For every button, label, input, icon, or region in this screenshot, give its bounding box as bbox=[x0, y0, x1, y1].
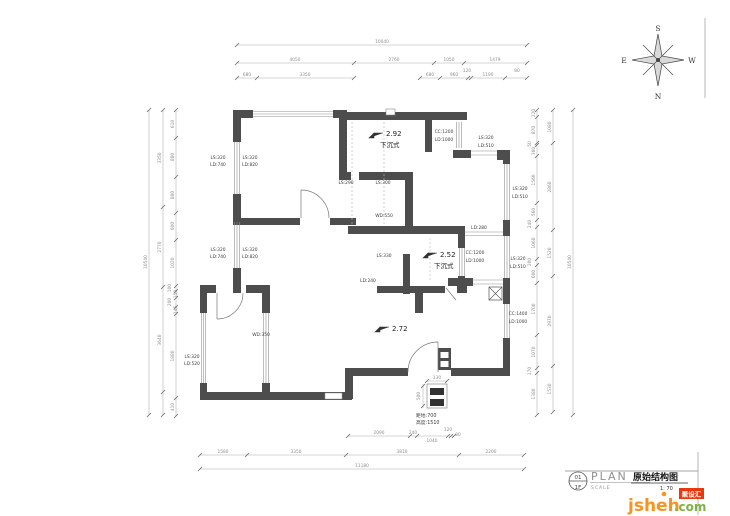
fixture-label-1: 距地:700 bbox=[416, 412, 436, 419]
door-pier-slot-2 bbox=[441, 361, 449, 367]
compass-rose: S N E W bbox=[621, 24, 696, 101]
level-value-3: 2.72 bbox=[392, 325, 408, 333]
beam-labels: LS:320 LD:740 LS:320 LD:820 LS:320 LD:74… bbox=[184, 129, 528, 367]
dim-right-in-8: 200 bbox=[527, 258, 533, 266]
dim-top-r3-6: 80 bbox=[514, 68, 520, 74]
beam-13-l2: LD:1000 bbox=[466, 258, 485, 264]
dim-right-in-7: 1060 bbox=[531, 237, 537, 248]
level-flag-icon-3 bbox=[375, 327, 389, 332]
sheet-number: 01 bbox=[575, 475, 582, 481]
dim-bot-r2-2: 3810 bbox=[397, 449, 408, 455]
wall-vent-box bbox=[386, 109, 395, 115]
dim-top-r2-1: 2760 bbox=[389, 57, 400, 63]
dim-right-mid-3: 2970 bbox=[547, 315, 553, 326]
beam-0-l2: LD:740 bbox=[210, 162, 226, 168]
dim-right-in-10: 1700 bbox=[531, 303, 537, 314]
dim-bot-r1-1: 240 bbox=[409, 430, 417, 436]
dim-right-mid-2: 1520 bbox=[547, 247, 553, 258]
logo-tld-text: .com bbox=[674, 500, 706, 514]
dim-right-in-0: 220 bbox=[531, 109, 537, 117]
level-note-1: 下沉式 bbox=[380, 140, 400, 149]
dim-left-mid-0: 3350 bbox=[157, 152, 163, 163]
beam-10-l1: LS:320 bbox=[478, 135, 493, 141]
beam-0-l1: LS:320 bbox=[210, 155, 225, 161]
level-note-2: 下沉式 bbox=[434, 261, 454, 270]
dim-right-in-6: 240 bbox=[527, 220, 533, 228]
fixture-height-dim: 500 bbox=[416, 392, 422, 400]
beam-14-l1: LS:320 bbox=[510, 256, 525, 262]
dim-top-r2-2: 1050 bbox=[444, 57, 455, 63]
scale-value: 1: 70 bbox=[660, 486, 673, 492]
fixture-bar-1 bbox=[430, 388, 444, 395]
dim-bot-total: 11180 bbox=[355, 463, 369, 469]
beam-11-l1: LS:320 bbox=[512, 186, 527, 192]
beam-5-l1: WD:350 bbox=[252, 332, 270, 338]
dim-top-r3-4: 120 bbox=[463, 68, 471, 74]
dim-right-in-13: 1380 bbox=[531, 388, 537, 399]
dim-top-r3-5: 1190 bbox=[483, 72, 494, 78]
dim-left-in-2: 800 bbox=[170, 191, 176, 199]
dim-top-r3-0: 680 bbox=[243, 72, 251, 78]
dim-left-in-5: 100 bbox=[167, 284, 173, 292]
level-flag-icon-2 bbox=[423, 253, 437, 258]
beam-2-l1: LS:320 bbox=[210, 247, 225, 253]
wall-notch bbox=[325, 393, 342, 399]
dim-right-in-1: 870 bbox=[531, 126, 537, 134]
fixture-width-dim: 130 bbox=[433, 375, 441, 381]
dim-right-in-4: 1560 bbox=[531, 174, 537, 185]
dim-bot-r2-1: 3350 bbox=[291, 449, 302, 455]
beam-9-l2: LD:1000 bbox=[435, 137, 454, 143]
watermark-logo: jsheh .com 聚设汇 bbox=[627, 488, 706, 516]
beam-10-l2: LD:510 bbox=[478, 143, 494, 149]
dim-bot-r1-0: 2090 bbox=[374, 430, 385, 436]
title-block: 01 1F PLAN SCALE 原始结构图 1: 70 bbox=[565, 470, 698, 492]
beam-13-l1: CC:1200 bbox=[466, 250, 485, 256]
beam-9-l1: CC:1200 bbox=[435, 129, 454, 135]
plan-label: PLAN bbox=[591, 470, 628, 483]
dim-right-in-11: 1070 bbox=[531, 346, 537, 357]
dim-right-in-12: 170 bbox=[527, 367, 533, 375]
beam-14-l2: LD:510 bbox=[510, 264, 526, 270]
scale-label: SCALE bbox=[591, 485, 610, 491]
compass-south-label: S bbox=[655, 24, 660, 33]
dim-right-total: 10540 bbox=[567, 255, 573, 269]
beam-3-l2: LD:820 bbox=[242, 254, 258, 260]
dim-right-mid-0: 1080 bbox=[547, 121, 553, 132]
beam-15-l1: CC:1400 bbox=[509, 311, 528, 317]
dim-left-mid-2: 3640 bbox=[157, 334, 163, 345]
dim-right-in-9: 600 bbox=[531, 270, 537, 278]
dim-bot-r1-2: 1040 bbox=[427, 438, 438, 444]
dim-right-in-3: 360 bbox=[531, 147, 537, 155]
dim-top-r3-2: 680 bbox=[426, 72, 434, 78]
beam-17-l1: LD:240 bbox=[360, 278, 376, 284]
dimension-chains: 10040 4050 2760 1050 1479 680 3350 680 9… bbox=[143, 39, 575, 471]
fixture-label-2: 高度:1510 bbox=[416, 419, 439, 426]
dim-bot-r1-4: 80 bbox=[455, 432, 461, 438]
dim-left-in-8: 145 bbox=[173, 306, 179, 314]
dim-bot-r2-0: 1580 bbox=[218, 449, 229, 455]
dim-top-total: 10040 bbox=[375, 39, 389, 45]
dim-bot-r1-3: 120 bbox=[444, 427, 452, 433]
beam-8-l1: WD:550 bbox=[375, 213, 393, 219]
beam-16-l1: LS:330 bbox=[376, 253, 391, 259]
sheet-floor: 1F bbox=[575, 485, 582, 491]
beam-6-l1: LS:290 bbox=[338, 180, 353, 186]
dim-right-mid-4: 1530 bbox=[547, 383, 553, 394]
compass-east-label: E bbox=[621, 56, 626, 65]
level-value-2: 2.52 bbox=[440, 251, 456, 259]
dim-top-r3-1: 3350 bbox=[300, 72, 311, 78]
dim-left-mid-1: 2770 bbox=[157, 241, 163, 252]
beam-4-l1: LS:320 bbox=[184, 354, 199, 360]
beam-7-l1: LS:300 bbox=[375, 180, 390, 186]
dim-left-in-9: 1880 bbox=[170, 350, 176, 361]
logo-badge-text: 聚设汇 bbox=[681, 490, 702, 499]
compass-north-label: N bbox=[655, 92, 662, 101]
dim-left-in-3: 600 bbox=[170, 222, 176, 230]
dim-top-r2-3: 1479 bbox=[490, 57, 501, 63]
level-flag-icon-1 bbox=[369, 133, 383, 138]
compass-center bbox=[656, 58, 660, 62]
door-swings bbox=[217, 190, 456, 372]
logo-brand-text: jsheh bbox=[627, 496, 680, 516]
window-fixture-detail: 130 500 距地:700 高度:1510 bbox=[416, 375, 447, 426]
level-value-1: 2.92 bbox=[386, 130, 402, 138]
beam-11-l2: LD:510 bbox=[512, 194, 528, 200]
drawing-title: 原始结构图 bbox=[633, 471, 678, 483]
dim-top-r2-0: 4050 bbox=[290, 57, 301, 63]
dim-left-in-6: 150 bbox=[173, 290, 179, 298]
dim-left-in-1: 880 bbox=[170, 153, 176, 161]
door-pier-slot-1 bbox=[441, 352, 449, 358]
dim-left-in-4: 1020 bbox=[170, 257, 176, 268]
beam-1-l2: LD:820 bbox=[242, 162, 258, 168]
dim-left-total: 10540 bbox=[143, 255, 149, 269]
dim-left-in-10: 410 bbox=[170, 403, 176, 411]
beam-3-l1: LS:320 bbox=[242, 247, 257, 253]
beam-1-l1: LS:320 bbox=[242, 155, 257, 161]
dim-right-in-2: 50 bbox=[527, 141, 533, 147]
dim-right-mid-1: 2860 bbox=[547, 181, 553, 192]
flue-shaft bbox=[489, 287, 502, 300]
beam-12-l1: LD:280 bbox=[471, 225, 487, 231]
sheet-frame-lines bbox=[698, 18, 705, 515]
beam-15-l2: LD:1000 bbox=[509, 319, 528, 325]
beam-4-l2: LD:520 bbox=[184, 361, 200, 367]
dim-top-r3-3: 960 bbox=[450, 72, 458, 78]
dim-right-in-5: 560 bbox=[531, 208, 537, 216]
dim-left-in-0: 610 bbox=[170, 120, 176, 128]
floor-plan-sheet: 10040 4050 2760 1050 1479 680 3350 680 9… bbox=[0, 0, 730, 516]
dim-bot-r2-3: 2200 bbox=[486, 449, 497, 455]
beam-2-l2: LD:740 bbox=[210, 254, 226, 260]
fixture-bar-2 bbox=[430, 399, 444, 406]
compass-west-label: W bbox=[688, 56, 696, 65]
floor-plan-drawing: 10040 4050 2760 1050 1479 680 3350 680 9… bbox=[0, 0, 730, 516]
dim-left-in-7: 200 bbox=[167, 298, 173, 306]
